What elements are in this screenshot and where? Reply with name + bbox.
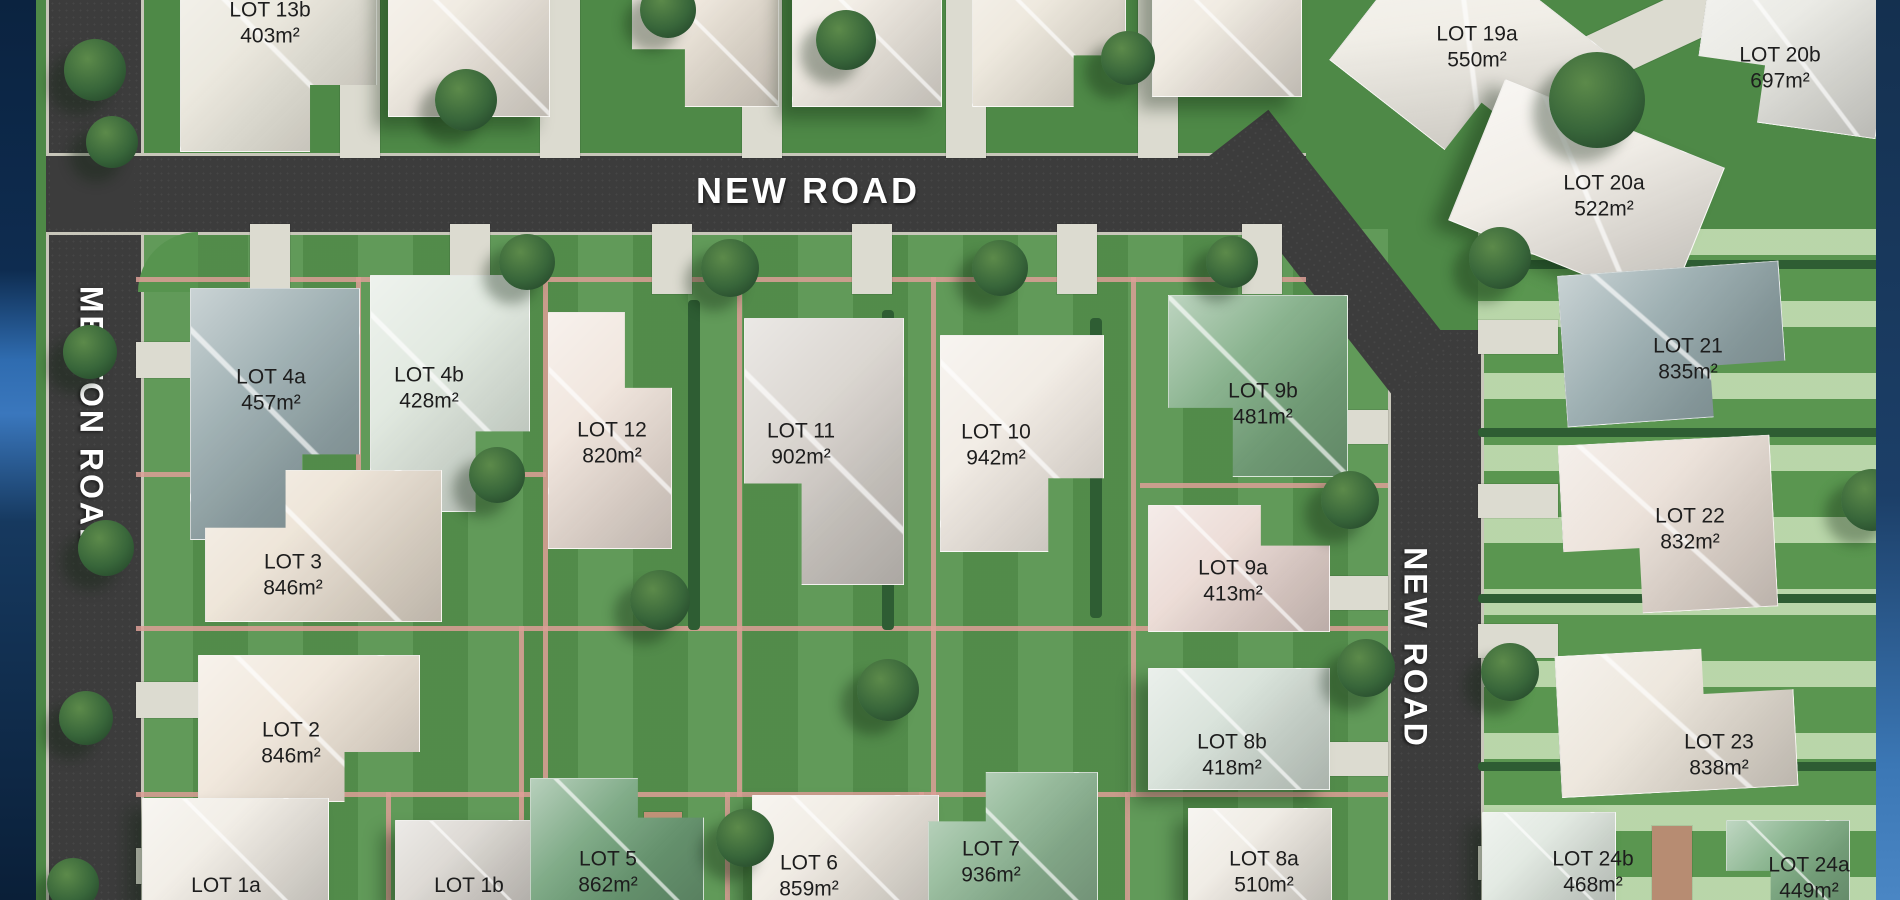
lot-id: LOT 24b bbox=[1552, 846, 1633, 872]
lot-label: LOT 9a413m² bbox=[1198, 555, 1268, 606]
tree bbox=[1481, 643, 1539, 701]
lot-label: LOT 8a510m² bbox=[1229, 846, 1299, 897]
fence bbox=[519, 626, 524, 797]
road-label-new-road-top: NEW ROAD bbox=[696, 170, 920, 212]
lot-id: LOT 20a bbox=[1563, 170, 1644, 196]
lot-area: 449m² bbox=[1768, 878, 1849, 900]
lot-label: LOT 2846m² bbox=[261, 717, 321, 768]
lot-area: 550m² bbox=[1436, 47, 1517, 73]
site-plan: NEW ROAD MELTON ROAD NEW ROAD LOT 13b403… bbox=[0, 0, 1900, 900]
lot-label: LOT 13b403m² bbox=[229, 0, 310, 49]
lot-area: 510m² bbox=[1229, 872, 1299, 898]
lot-label: LOT 24b468m² bbox=[1552, 846, 1633, 897]
lot-id: LOT 21 bbox=[1653, 333, 1723, 359]
fence bbox=[737, 277, 742, 797]
lot-id: LOT 20b bbox=[1739, 42, 1820, 68]
lot-label: LOT 9b481m² bbox=[1228, 378, 1298, 429]
hedge bbox=[1478, 428, 1900, 437]
tree bbox=[59, 691, 113, 745]
hedge bbox=[688, 300, 700, 630]
lot-area: 835m² bbox=[1653, 359, 1723, 385]
lot-label: LOT 1a bbox=[191, 873, 261, 899]
brochure-border-right bbox=[1876, 0, 1900, 900]
tree bbox=[630, 570, 690, 630]
lot-area: 697m² bbox=[1739, 68, 1820, 94]
lot-area: 457m² bbox=[236, 390, 306, 416]
lot-id: LOT 3 bbox=[263, 549, 323, 575]
tree bbox=[86, 116, 138, 168]
driveway bbox=[852, 224, 892, 294]
lot-area: 942m² bbox=[961, 445, 1031, 471]
lot-id: LOT 10 bbox=[961, 419, 1031, 445]
lot-label: LOT 21835m² bbox=[1653, 333, 1723, 384]
lot-label: LOT 11902m² bbox=[767, 418, 835, 469]
lot-area: 859m² bbox=[779, 876, 839, 900]
lot-area: 820m² bbox=[577, 443, 647, 469]
lot-area: 832m² bbox=[1655, 529, 1725, 555]
lot-label: LOT 10942m² bbox=[961, 419, 1031, 470]
lot-id: LOT 9a bbox=[1198, 555, 1268, 581]
lot-area: 838m² bbox=[1684, 755, 1754, 781]
lot-id: LOT 12 bbox=[577, 417, 647, 443]
tree bbox=[972, 240, 1028, 296]
lot-id: LOT 9b bbox=[1228, 378, 1298, 404]
lot-id: LOT 8b bbox=[1197, 729, 1267, 755]
tree bbox=[469, 447, 525, 503]
lot-area: 846m² bbox=[261, 743, 321, 769]
driveway bbox=[1057, 224, 1097, 294]
lot-id: LOT 4a bbox=[236, 364, 306, 390]
tree bbox=[1206, 236, 1258, 288]
lot-id: LOT 1a bbox=[191, 873, 261, 899]
tree bbox=[1469, 227, 1531, 289]
lot-label: LOT 3846m² bbox=[263, 549, 323, 600]
lot-label: LOT 7936m² bbox=[961, 836, 1021, 887]
lot-id: LOT 8a bbox=[1229, 846, 1299, 872]
lot-label: LOT 20a522m² bbox=[1563, 170, 1644, 221]
lot-id: LOT 24a bbox=[1768, 852, 1849, 878]
lot-label: LOT 20b697m² bbox=[1739, 42, 1820, 93]
lot-id: LOT 7 bbox=[961, 836, 1021, 862]
road-label-new-road-right: NEW ROAD bbox=[1397, 547, 1434, 749]
tree bbox=[1337, 639, 1395, 697]
tree bbox=[1549, 52, 1645, 148]
lot-area: 862m² bbox=[578, 872, 638, 898]
lot-area: 522m² bbox=[1563, 196, 1644, 222]
lot-label: LOT 24a449m² bbox=[1768, 852, 1849, 900]
house bbox=[1152, 0, 1302, 97]
lot-id: LOT 22 bbox=[1655, 503, 1725, 529]
tree bbox=[716, 809, 774, 867]
driveway bbox=[1652, 826, 1692, 900]
lot-area: 936m² bbox=[961, 862, 1021, 888]
lot-id: LOT 13b bbox=[229, 0, 310, 23]
lot-area: 846m² bbox=[263, 575, 323, 601]
road-junction-patch bbox=[50, 157, 134, 225]
lot-area: 481m² bbox=[1228, 404, 1298, 430]
lot-id: LOT 1b bbox=[434, 873, 504, 899]
lot-label: LOT 5862m² bbox=[578, 846, 638, 897]
tree bbox=[857, 659, 919, 721]
lot-id: LOT 2 bbox=[261, 717, 321, 743]
tree bbox=[63, 325, 117, 379]
lot-area: 403m² bbox=[229, 23, 310, 49]
lot-label: LOT 12820m² bbox=[577, 417, 647, 468]
fence bbox=[386, 792, 391, 900]
lot-label: LOT 19a550m² bbox=[1436, 21, 1517, 72]
lot-id: LOT 11 bbox=[767, 418, 835, 444]
lot-label: LOT 6859m² bbox=[779, 850, 839, 900]
brochure-border-left bbox=[0, 0, 36, 900]
tree bbox=[435, 69, 497, 131]
lot-label: LOT 22832m² bbox=[1655, 503, 1725, 554]
lot-area: 902m² bbox=[767, 444, 835, 470]
lot-area: 428m² bbox=[394, 388, 464, 414]
lot-id: LOT 4b bbox=[394, 362, 464, 388]
lot-label: LOT 1b bbox=[434, 873, 504, 899]
tree bbox=[78, 520, 134, 576]
fence bbox=[1131, 277, 1136, 797]
tree bbox=[701, 239, 759, 297]
fence bbox=[1125, 792, 1130, 900]
lot-label: LOT 4a457m² bbox=[236, 364, 306, 415]
lot-id: LOT 19a bbox=[1436, 21, 1517, 47]
lot-id: LOT 5 bbox=[578, 846, 638, 872]
tree bbox=[1101, 31, 1155, 85]
lot-label: LOT 4b428m² bbox=[394, 362, 464, 413]
lot-id: LOT 6 bbox=[779, 850, 839, 876]
lot-label: LOT 23838m² bbox=[1684, 729, 1754, 780]
fence bbox=[543, 277, 548, 797]
lot-id: LOT 23 bbox=[1684, 729, 1754, 755]
tree bbox=[64, 39, 126, 101]
driveway bbox=[1478, 484, 1558, 518]
tree bbox=[499, 234, 555, 290]
driveway bbox=[652, 224, 692, 294]
road-new-top bbox=[46, 153, 1306, 235]
fence bbox=[931, 277, 936, 797]
lot-area: 468m² bbox=[1552, 872, 1633, 898]
driveway bbox=[1478, 320, 1558, 354]
lot-label: LOT 8b418m² bbox=[1197, 729, 1267, 780]
tree bbox=[1321, 471, 1379, 529]
driveway bbox=[250, 224, 290, 294]
tree bbox=[816, 10, 876, 70]
lot-area: 413m² bbox=[1198, 581, 1268, 607]
lot-area: 418m² bbox=[1197, 755, 1267, 781]
